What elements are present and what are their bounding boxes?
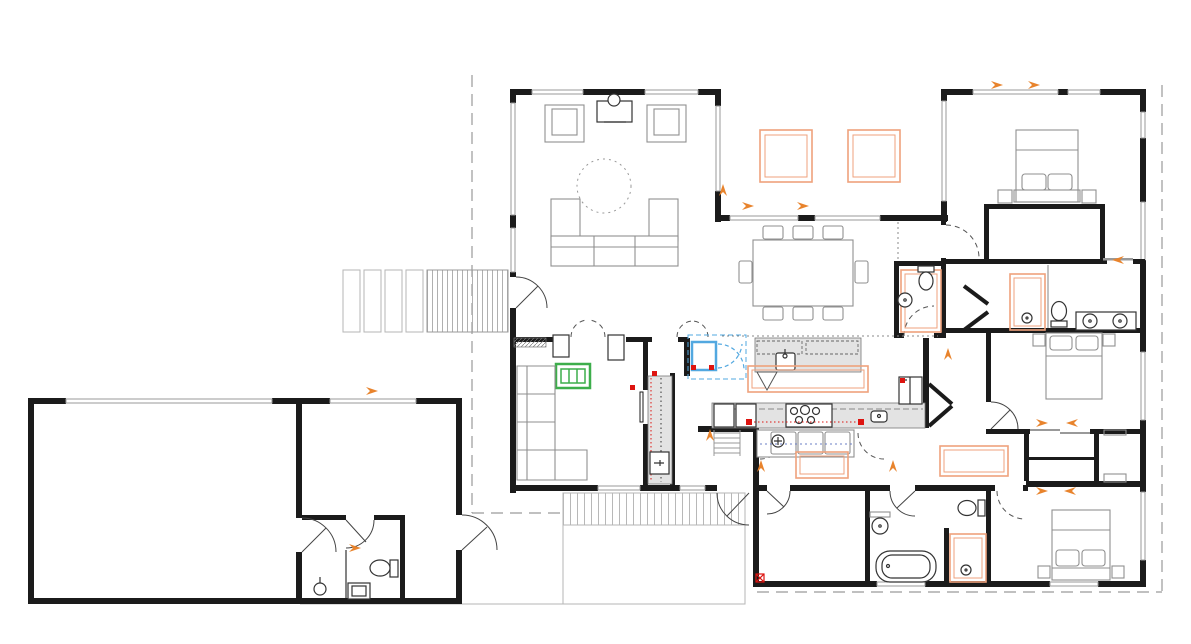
- kitchen-island: [755, 338, 861, 372]
- mudroom-toilet: [370, 560, 398, 577]
- pocket-door: [640, 392, 643, 422]
- toilet: [958, 500, 985, 516]
- dining-table: [753, 240, 853, 306]
- sitting-nook: [757, 430, 1008, 478]
- bedroom-2: [1033, 333, 1115, 399]
- master-suite: [998, 130, 1136, 330]
- mudroom-exterior-door: [462, 515, 497, 550]
- master-north-window: [973, 90, 1058, 94]
- shower: [950, 534, 986, 582]
- paver: [385, 270, 402, 332]
- washing-machine: [348, 583, 370, 599]
- garage-wing: [28, 398, 497, 604]
- courtyard: [760, 130, 900, 182]
- paver: [406, 270, 423, 332]
- bedroom3-south-window: [1050, 582, 1098, 586]
- toilet: [1051, 302, 1067, 328]
- nightstand: [1103, 334, 1115, 346]
- blue-fireplace-unit: [684, 335, 746, 379]
- master-north-window: [1068, 90, 1100, 94]
- mudroom-wc-door: [346, 520, 374, 548]
- round-rug: [577, 159, 631, 213]
- dining-chair: [793, 307, 813, 320]
- east-window: [1141, 202, 1145, 260]
- bed: [1052, 510, 1110, 580]
- east-window: [1141, 112, 1145, 138]
- dining-north-window: [730, 216, 798, 220]
- bedroom3-door: [997, 491, 1025, 519]
- bedroom4-door: [767, 491, 790, 514]
- sectional-sofa: [551, 199, 678, 266]
- paver: [364, 270, 381, 332]
- east-window: [1141, 352, 1145, 420]
- nightstand: [1038, 566, 1050, 578]
- bed: [1046, 333, 1102, 399]
- media-unit: [597, 94, 632, 122]
- paver: [343, 270, 360, 332]
- dining-chair: [739, 261, 752, 283]
- foyer-wardrobe: [553, 335, 569, 357]
- green-window-unit: [556, 364, 590, 388]
- skylight-square: [760, 130, 812, 182]
- mudroom-basin: [314, 583, 326, 595]
- nightstand: [998, 190, 1012, 203]
- bedroom2-door: [991, 402, 1018, 429]
- sliding-door-track: [1030, 429, 1060, 431]
- courtyard-west-window: [716, 106, 720, 191]
- nightstand: [1112, 566, 1124, 578]
- skylight-square: [848, 130, 900, 182]
- lounge-south-window: [598, 486, 640, 490]
- toilet: [918, 266, 934, 290]
- dining-chair: [823, 307, 843, 320]
- basin: [870, 512, 890, 534]
- foyer-wardrobe: [608, 335, 624, 360]
- dining-chair: [763, 307, 783, 320]
- master-ensuite: [1010, 265, 1136, 330]
- bathroom-door: [890, 491, 915, 516]
- outdoor-steps: [714, 430, 740, 456]
- living-room-furniture: [545, 94, 686, 266]
- bedroom-3: [1038, 510, 1124, 580]
- living-west-window: [511, 228, 515, 272]
- entry-door: [516, 277, 547, 308]
- mudroom-window: [330, 399, 416, 403]
- scullery: [648, 376, 672, 484]
- entry-deck-ramp: [427, 270, 508, 332]
- floor-plan-page: [0, 0, 1191, 644]
- living-north-window: [532, 90, 583, 94]
- garage-window: [66, 399, 272, 403]
- dining-set: [739, 226, 868, 320]
- powder-room: [898, 266, 941, 332]
- nightstand: [1033, 334, 1045, 346]
- cooktop: [786, 404, 832, 427]
- living-north-window: [645, 90, 698, 94]
- main-bathroom: [870, 500, 986, 582]
- dining-chair: [763, 226, 783, 239]
- double-vanity: [1076, 312, 1136, 330]
- east-window: [1141, 492, 1145, 560]
- master-bedroom-door: [946, 225, 979, 258]
- lounge-south-window: [680, 486, 705, 490]
- walkin-robe-wall: [984, 204, 1105, 209]
- sliding-door-track: [1060, 432, 1090, 434]
- dining-chair: [823, 226, 843, 239]
- kitchen-rear-counter: [712, 403, 925, 428]
- armchair: [647, 105, 686, 142]
- dishwasher-symbol: [757, 372, 777, 390]
- window-seat: [514, 338, 546, 347]
- bathtub: [876, 551, 936, 582]
- garage-to-mudroom-door: [302, 518, 336, 552]
- hall-shelf: [1104, 474, 1126, 482]
- dining-north-window: [815, 216, 880, 220]
- dining-chair: [855, 261, 868, 283]
- living-west-window: [511, 103, 515, 215]
- nightstand: [1082, 190, 1096, 203]
- floor-plan-canvas: [0, 0, 1191, 644]
- nook-door: [858, 433, 884, 459]
- courtyard-east-window: [942, 101, 946, 201]
- master-bed: [998, 130, 1096, 203]
- armchair: [545, 105, 584, 142]
- dining-chair: [793, 226, 813, 239]
